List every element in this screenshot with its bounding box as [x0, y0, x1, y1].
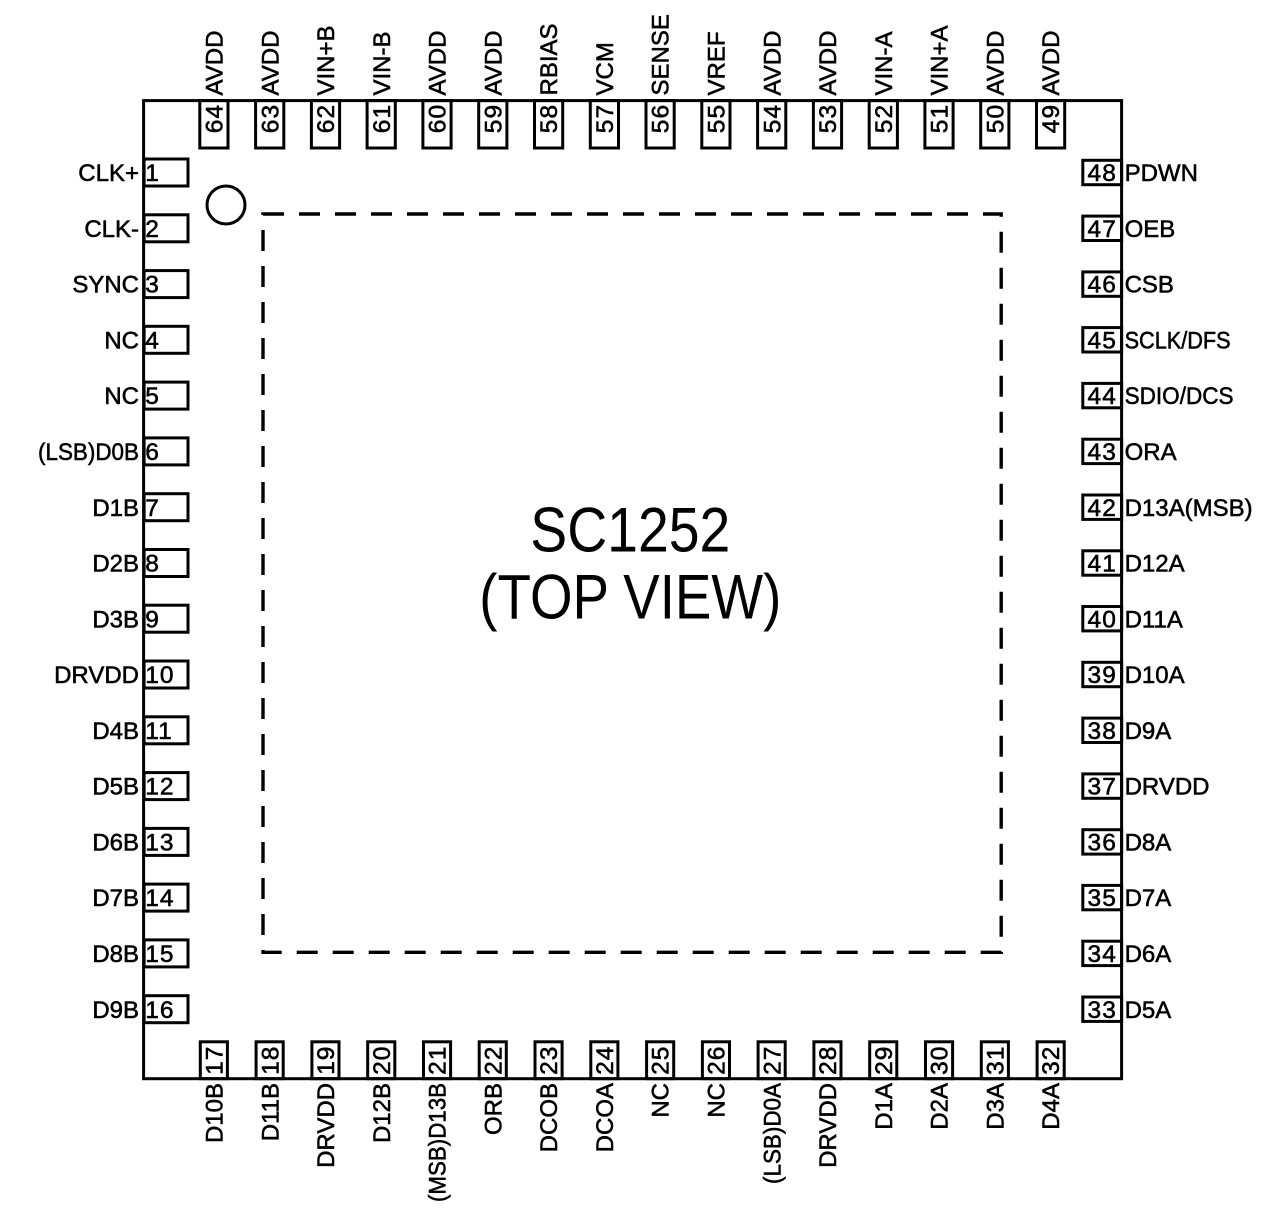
svg-text:36: 36 — [1087, 830, 1116, 857]
svg-text:D6A: D6A — [1125, 941, 1172, 968]
svg-text:56: 56 — [648, 104, 675, 133]
svg-text:D10A: D10A — [1125, 662, 1185, 689]
svg-text:D3A: D3A — [982, 1083, 1009, 1130]
svg-text:(LSB)D0B: (LSB)D0B — [38, 439, 139, 466]
svg-text:PDWN: PDWN — [1125, 160, 1198, 187]
svg-text:VCM: VCM — [592, 42, 619, 95]
svg-text:D1A: D1A — [871, 1083, 898, 1130]
svg-text:VIN-A: VIN-A — [871, 31, 898, 95]
svg-text:34: 34 — [1087, 941, 1116, 968]
svg-text:(LSB)D0A: (LSB)D0A — [759, 1083, 786, 1184]
svg-text:19: 19 — [313, 1045, 340, 1074]
svg-text:14: 14 — [145, 885, 174, 912]
svg-text:DCOA: DCOA — [592, 1083, 619, 1152]
svg-text:3: 3 — [145, 272, 160, 299]
svg-text:27: 27 — [759, 1045, 786, 1074]
svg-text:D7B: D7B — [92, 885, 139, 912]
svg-text:21: 21 — [425, 1045, 452, 1074]
svg-text:37: 37 — [1087, 774, 1116, 801]
svg-text:31: 31 — [982, 1045, 1009, 1074]
svg-text:22: 22 — [480, 1045, 507, 1074]
svg-text:33: 33 — [1087, 997, 1116, 1024]
svg-text:NC: NC — [104, 383, 139, 410]
svg-text:38: 38 — [1087, 718, 1116, 745]
svg-text:32: 32 — [1038, 1045, 1065, 1074]
svg-text:D4B: D4B — [92, 718, 139, 745]
svg-text:39: 39 — [1087, 662, 1116, 689]
svg-text:41: 41 — [1087, 551, 1116, 578]
svg-text:64: 64 — [202, 104, 229, 133]
svg-text:48: 48 — [1087, 160, 1116, 187]
svg-text:43: 43 — [1087, 439, 1116, 466]
svg-text:SENSE: SENSE — [648, 14, 675, 95]
svg-text:50: 50 — [982, 104, 1009, 133]
svg-text:12: 12 — [145, 774, 174, 801]
svg-text:D2B: D2B — [92, 551, 139, 578]
svg-text:11: 11 — [145, 718, 173, 745]
svg-text:53: 53 — [815, 104, 842, 133]
svg-text:AVDD: AVDD — [759, 31, 786, 96]
svg-text:AVDD: AVDD — [1038, 31, 1065, 96]
svg-text:13: 13 — [145, 830, 174, 857]
svg-text:OEB: OEB — [1125, 216, 1176, 243]
svg-text:D9B: D9B — [92, 997, 139, 1024]
svg-text:61: 61 — [369, 104, 396, 133]
svg-text:D13A(MSB): D13A(MSB) — [1125, 495, 1253, 522]
svg-text:44: 44 — [1087, 383, 1116, 410]
svg-text:D12B: D12B — [369, 1083, 396, 1143]
svg-text:AVDD: AVDD — [425, 31, 452, 96]
svg-text:26: 26 — [704, 1045, 731, 1074]
svg-text:20: 20 — [369, 1045, 396, 1074]
svg-text:52: 52 — [871, 104, 898, 133]
svg-text:15: 15 — [145, 941, 174, 968]
svg-text:40: 40 — [1087, 606, 1116, 633]
svg-text:DRVDD: DRVDD — [815, 1083, 842, 1168]
svg-text:AVDD: AVDD — [982, 31, 1009, 96]
svg-text:(TOP VIEW): (TOP VIEW) — [479, 562, 781, 632]
svg-text:SCLK/DFS: SCLK/DFS — [1125, 327, 1231, 354]
svg-text:51: 51 — [927, 104, 954, 133]
svg-text:63: 63 — [257, 104, 284, 133]
svg-text:NC: NC — [704, 1083, 731, 1118]
svg-text:46: 46 — [1087, 272, 1116, 299]
svg-text:55: 55 — [704, 104, 731, 133]
svg-text:62: 62 — [313, 104, 340, 133]
svg-text:D6B: D6B — [92, 830, 139, 857]
svg-text:SDIO/DCS: SDIO/DCS — [1125, 383, 1234, 410]
svg-text:29: 29 — [871, 1045, 898, 1074]
svg-text:VIN-B: VIN-B — [369, 31, 396, 95]
svg-text:RBIAS: RBIAS — [536, 23, 563, 95]
svg-text:D11B: D11B — [257, 1083, 284, 1141]
svg-text:D5A: D5A — [1125, 997, 1172, 1024]
svg-text:D3B: D3B — [92, 606, 139, 633]
svg-text:28: 28 — [815, 1045, 842, 1074]
svg-text:CSB: CSB — [1125, 272, 1174, 299]
svg-text:NC: NC — [104, 327, 139, 354]
svg-text:CLK-: CLK- — [84, 216, 139, 243]
svg-text:60: 60 — [425, 104, 452, 133]
svg-text:SYNC: SYNC — [72, 272, 139, 299]
svg-text:42: 42 — [1087, 495, 1116, 522]
svg-text:8: 8 — [145, 551, 160, 578]
svg-text:D4A: D4A — [1038, 1083, 1065, 1130]
svg-text:DCOB: DCOB — [536, 1083, 563, 1152]
svg-text:4: 4 — [145, 327, 160, 354]
svg-text:AVDD: AVDD — [202, 31, 229, 96]
svg-text:D9A: D9A — [1125, 718, 1172, 745]
svg-text:24: 24 — [592, 1045, 619, 1074]
svg-text:AVDD: AVDD — [815, 31, 842, 96]
svg-text:ORA: ORA — [1125, 439, 1177, 466]
svg-text:DRVDD: DRVDD — [1125, 774, 1210, 801]
svg-text:DRVDD: DRVDD — [54, 662, 139, 689]
svg-text:30: 30 — [927, 1045, 954, 1074]
svg-text:D2A: D2A — [927, 1083, 954, 1130]
svg-text:D8B: D8B — [92, 941, 139, 968]
svg-text:6: 6 — [145, 439, 160, 466]
svg-text:57: 57 — [592, 104, 619, 133]
svg-text:AVDD: AVDD — [257, 31, 284, 96]
svg-text:47: 47 — [1087, 216, 1116, 243]
svg-text:SC1252: SC1252 — [530, 495, 730, 565]
svg-text:DRVDD: DRVDD — [313, 1083, 340, 1168]
svg-text:10: 10 — [145, 662, 174, 689]
svg-text:2: 2 — [145, 216, 160, 243]
svg-text:ORB: ORB — [480, 1083, 507, 1135]
svg-text:9: 9 — [145, 606, 160, 633]
svg-text:45: 45 — [1087, 327, 1116, 354]
svg-text:CLK+: CLK+ — [78, 160, 139, 187]
svg-text:D7A: D7A — [1125, 885, 1172, 912]
svg-text:5: 5 — [145, 383, 160, 410]
svg-text:D1B: D1B — [92, 495, 139, 522]
svg-text:1: 1 — [145, 160, 160, 187]
svg-text:7: 7 — [145, 495, 160, 522]
svg-text:VREF: VREF — [704, 31, 731, 95]
svg-text:VIN+A: VIN+A — [927, 25, 954, 95]
svg-text:54: 54 — [759, 104, 786, 133]
svg-text:D8A: D8A — [1125, 830, 1172, 857]
svg-text:(MSB)D13B: (MSB)D13B — [425, 1083, 452, 1202]
svg-text:18: 18 — [257, 1045, 284, 1074]
svg-text:16: 16 — [145, 997, 174, 1024]
svg-text:59: 59 — [480, 104, 507, 133]
svg-text:AVDD: AVDD — [480, 31, 507, 96]
svg-text:35: 35 — [1087, 885, 1116, 912]
svg-text:NC: NC — [648, 1083, 675, 1118]
svg-text:VIN+B: VIN+B — [313, 25, 340, 95]
svg-text:49: 49 — [1038, 104, 1065, 133]
svg-text:17: 17 — [202, 1045, 229, 1074]
svg-text:58: 58 — [536, 104, 563, 133]
svg-text:D12A: D12A — [1125, 551, 1185, 578]
svg-text:23: 23 — [536, 1045, 563, 1074]
svg-text:D5B: D5B — [92, 774, 139, 801]
svg-text:D10B: D10B — [202, 1083, 229, 1143]
svg-text:25: 25 — [648, 1045, 675, 1074]
svg-text:D11A: D11A — [1125, 606, 1183, 633]
